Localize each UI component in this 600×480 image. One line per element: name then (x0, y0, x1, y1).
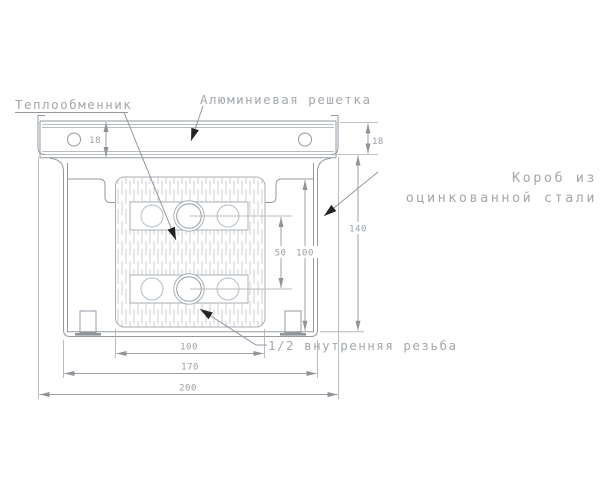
dimension-100-bottom: 100 (116, 329, 265, 358)
leader-aluminum-grille (191, 106, 203, 141)
label-steel-box-line2: оцинкованной стали (406, 190, 597, 206)
dim-text-140: 140 (349, 225, 367, 235)
dimension-100-vertical: 100 (292, 180, 318, 331)
support-foot-right (280, 311, 306, 334)
dim-text-200: 200 (179, 384, 197, 394)
callout-aluminum-grille: Алюминиевая решетка (191, 92, 372, 141)
convector-cross-section-drawing: 18 18 140 100 50 100 170 200 Тепло (0, 0, 600, 480)
dimension-50: 50 (270, 217, 291, 288)
grille-top-inner-lines (42, 125, 334, 128)
support-foot-left (75, 311, 101, 334)
callout-steel-box: Короб из оцинкованной стали (324, 170, 597, 216)
foot-right-body (285, 311, 301, 333)
dim-text-100-vertical: 100 (296, 249, 314, 259)
dim-text-170: 170 (181, 363, 199, 373)
label-heat-exchanger: Теплообменник (15, 97, 132, 112)
grille-bottom-inner-lines (42, 152, 334, 155)
dim-text-18-right: 18 (372, 137, 384, 147)
aluminum-grille-profile (38, 116, 338, 158)
mounting-hole-right (299, 133, 312, 146)
dim-text-50: 50 (275, 249, 287, 259)
foot-left-body (80, 311, 96, 333)
dim-text-100-bottom: 100 (180, 343, 198, 353)
leader-steel-box (324, 172, 378, 216)
dim-text-18-left: 18 (89, 136, 101, 146)
label-thread: 1/2 внутренняя резьба (268, 338, 458, 353)
box-ledge-left (68, 179, 116, 203)
label-aluminum-grille: Алюминиевая решетка (200, 92, 372, 107)
dimension-18-right: 18 (333, 123, 384, 155)
label-steel-box-line1: Короб из (512, 170, 597, 186)
grille-end-edges (40, 121, 336, 158)
mounting-hole-left (68, 133, 81, 146)
box-ledge-right (265, 179, 314, 203)
dimension-140: 140 (320, 156, 371, 332)
technical-drawing-canvas: 18 18 140 100 50 100 170 200 Тепло (0, 0, 600, 480)
heat-exchanger-assembly (116, 177, 293, 327)
